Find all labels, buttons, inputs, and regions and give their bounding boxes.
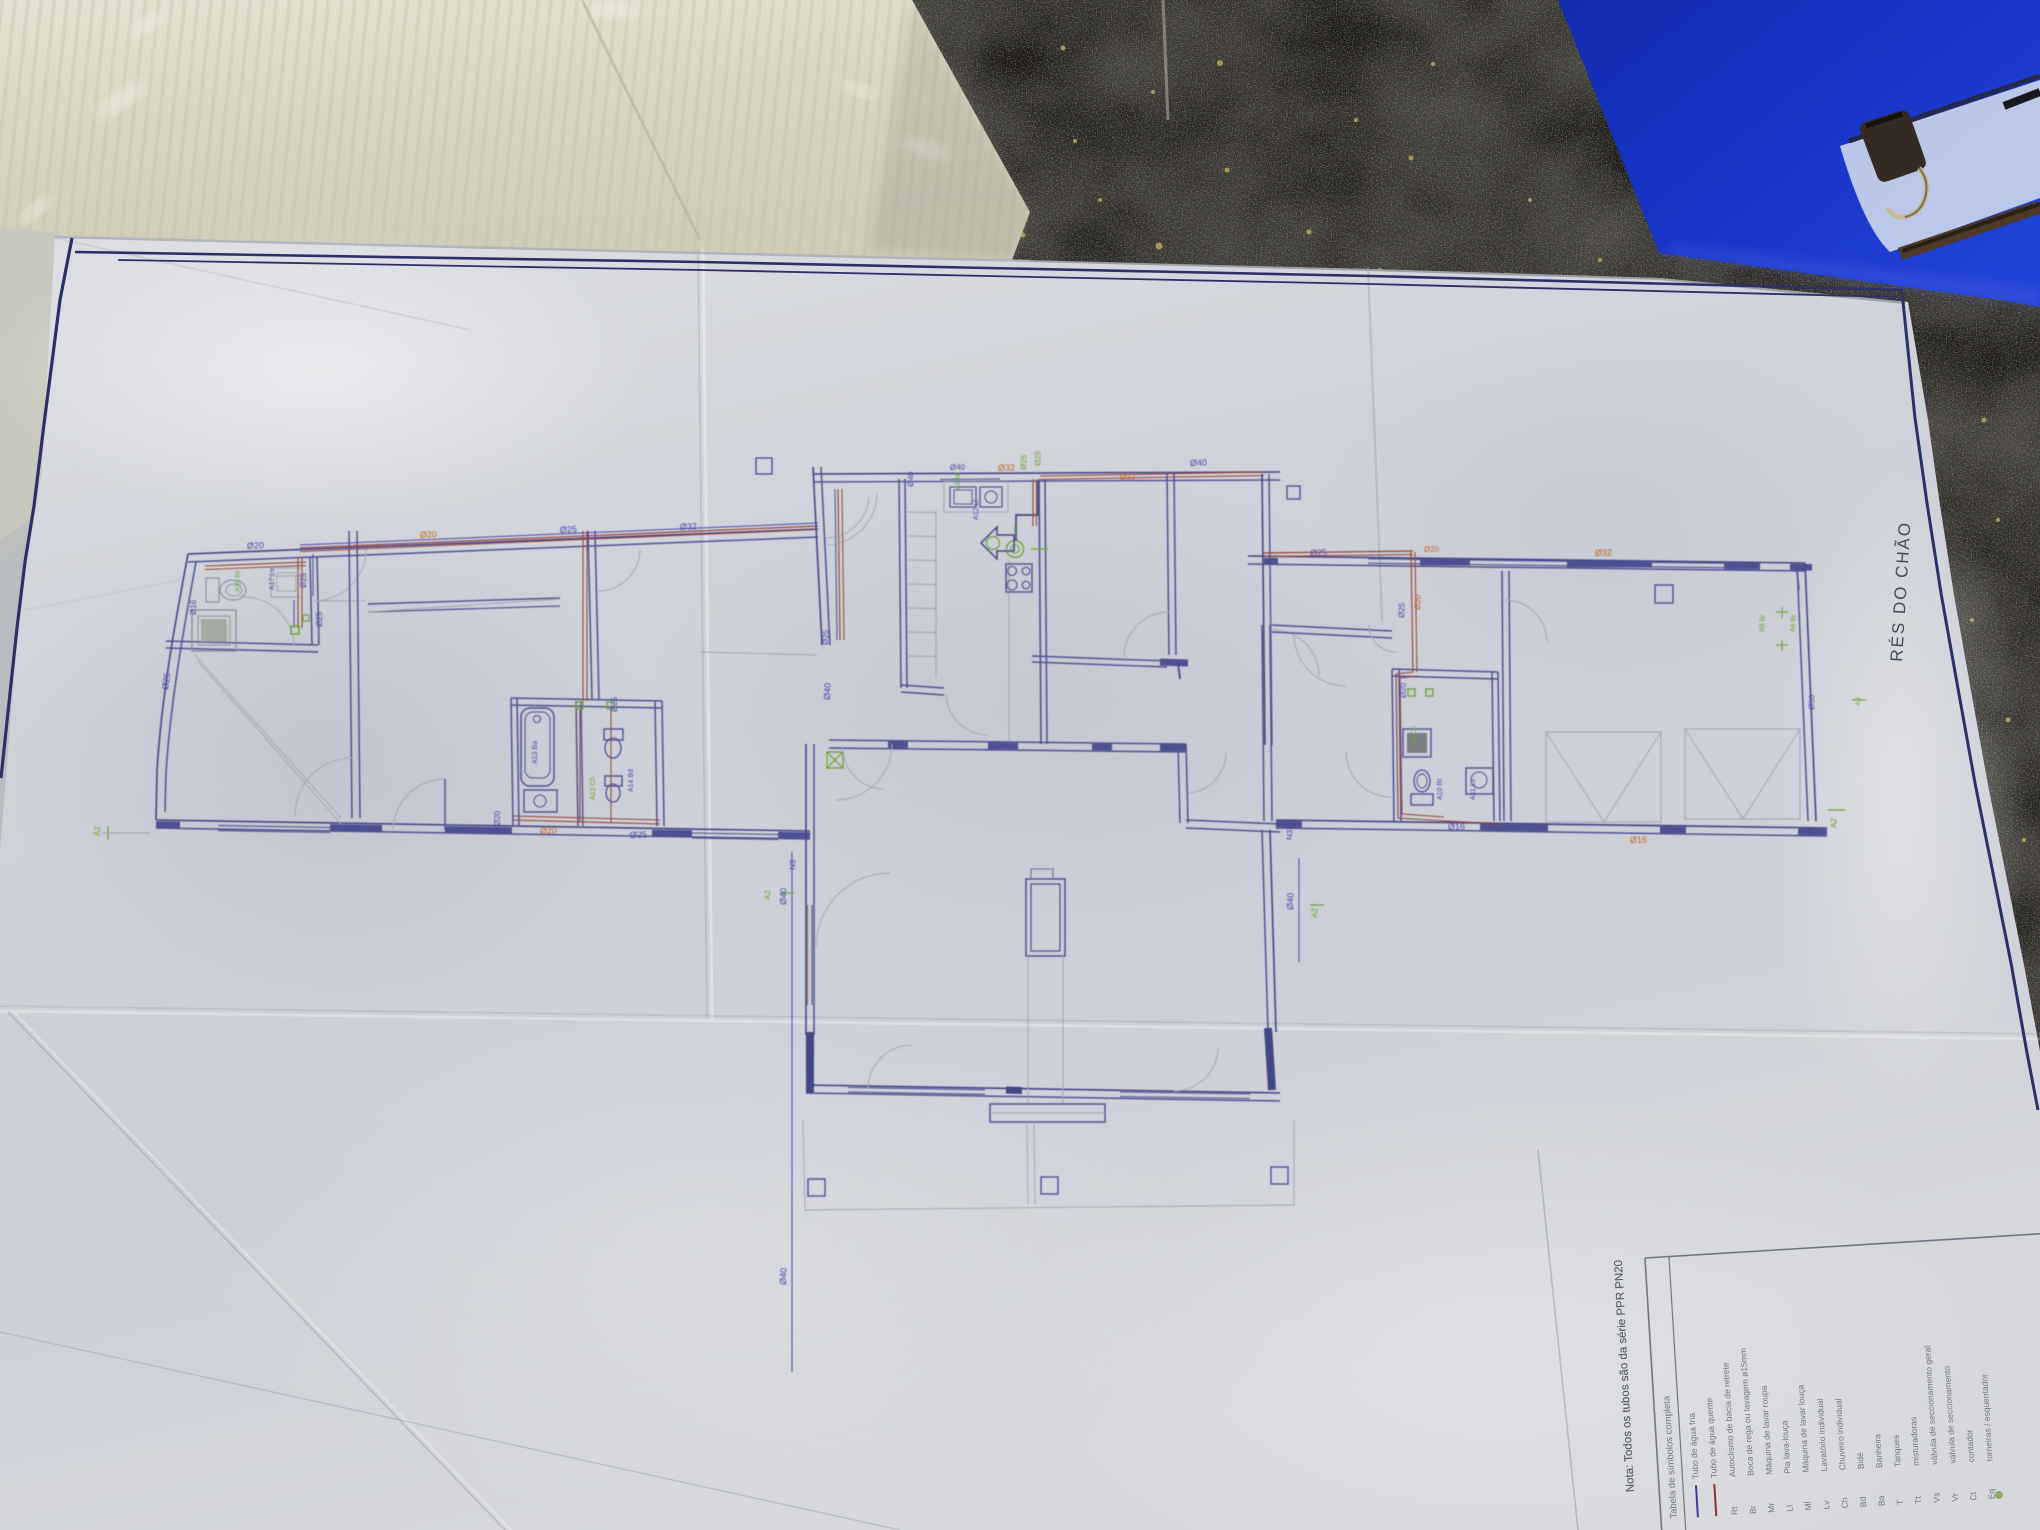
svg-text:Ø25: Ø25 xyxy=(560,524,578,535)
svg-text:Ll: Ll xyxy=(1784,1505,1794,1512)
svg-text:A12 Ll: A12 Ll xyxy=(973,500,980,520)
svg-text:N3: N3 xyxy=(788,859,797,870)
svg-text:A16 Rt: A16 Rt xyxy=(235,571,242,592)
svg-text:A10 Rt: A10 Rt xyxy=(1437,779,1444,800)
svg-text:Ø25: Ø25 xyxy=(610,696,619,712)
svg-text:Ø20: Ø20 xyxy=(247,540,265,551)
svg-text:Ø16: Ø16 xyxy=(1448,821,1465,832)
svg-text:Vr: Vr xyxy=(1950,1493,1960,1502)
svg-text:Ø20: Ø20 xyxy=(540,825,557,836)
svg-text:Ø20: Ø20 xyxy=(493,810,502,826)
svg-text:Ø25: Ø25 xyxy=(1033,450,1043,466)
svg-text:A2: A2 xyxy=(1310,907,1319,918)
svg-text:T: T xyxy=(1895,1499,1905,1505)
svg-text:Vs: Vs xyxy=(1931,1492,1942,1503)
svg-text:Ø16: Ø16 xyxy=(1630,834,1647,845)
svg-text:Ø40: Ø40 xyxy=(778,888,789,905)
svg-text:Ø20: Ø20 xyxy=(1413,594,1423,610)
svg-text:Bd: Bd xyxy=(1858,1496,1869,1507)
svg-text:Ml: Ml xyxy=(1803,1501,1814,1511)
svg-text:A8 Ch: A8 Ch xyxy=(1411,725,1418,745)
svg-text:Ø50: Ø50 xyxy=(1807,694,1817,710)
svg-text:Lv: Lv xyxy=(1821,1499,1832,1509)
svg-text:Ø40: Ø40 xyxy=(1285,893,1296,910)
svg-text:A6 Br: A6 Br xyxy=(1790,614,1798,632)
svg-text:Banheira: Banheira xyxy=(1872,1434,1884,1469)
svg-text:A2: A2 xyxy=(1829,817,1838,828)
svg-text:Ø32: Ø32 xyxy=(998,462,1015,473)
svg-text:Ø25: Ø25 xyxy=(630,829,647,840)
svg-text:contador: contador xyxy=(1964,1429,1976,1463)
svg-text:Ø25: Ø25 xyxy=(315,611,324,627)
svg-text:Mr: Mr xyxy=(1766,1502,1777,1513)
svg-text:Ø25: Ø25 xyxy=(299,572,308,588)
svg-text:Ø32: Ø32 xyxy=(680,521,698,532)
svg-text:Ø25: Ø25 xyxy=(1397,602,1407,618)
svg-text:A14 Bd: A14 Bd xyxy=(628,769,635,792)
svg-text:Ø40: Ø40 xyxy=(1190,457,1207,468)
svg-text:Rt: Rt xyxy=(1729,1506,1740,1516)
svg-text:Ba: Ba xyxy=(1876,1495,1887,1506)
svg-text:A13 Ba: A13 Ba xyxy=(532,741,539,764)
svg-text:A2: A2 xyxy=(93,826,102,836)
svg-text:Ø20: Ø20 xyxy=(1399,682,1408,698)
svg-text:A17 Lv: A17 Lv xyxy=(269,568,276,590)
svg-text:Ø32: Ø32 xyxy=(1595,547,1612,558)
svg-text:A2: A2 xyxy=(763,889,772,900)
svg-text:Ch: Ch xyxy=(1839,1497,1850,1509)
svg-text:Ct: Ct xyxy=(1968,1491,1979,1501)
svg-text:A9 Ml: A9 Ml xyxy=(955,472,962,490)
svg-text:Ø25: Ø25 xyxy=(1310,547,1327,558)
svg-text:Ø40: Ø40 xyxy=(778,1268,789,1285)
svg-text:Ø20: Ø20 xyxy=(1424,544,1440,554)
svg-text:Ø40: Ø40 xyxy=(906,471,916,487)
svg-text:A3: A3 xyxy=(1855,697,1862,706)
svg-text:Ø20: Ø20 xyxy=(420,529,438,540)
svg-text:A11 Lv: A11 Lv xyxy=(1470,778,1477,800)
svg-text:Ø25: Ø25 xyxy=(1019,454,1029,470)
svg-text:Ø40: Ø40 xyxy=(822,683,833,700)
svg-text:Ø32: Ø32 xyxy=(1120,472,1136,482)
svg-text:Br: Br xyxy=(1748,1505,1759,1514)
svg-text:Ø16: Ø16 xyxy=(189,599,198,615)
svg-text:N37: N37 xyxy=(1285,825,1295,841)
svg-text:A5 Br: A5 Br xyxy=(1759,614,1767,632)
svg-text:Tt: Tt xyxy=(1913,1495,1923,1504)
svg-text:Ø40: Ø40 xyxy=(950,462,966,472)
svg-text:A13 Ch: A13 Ch xyxy=(590,777,597,800)
svg-text:Bidé: Bidé xyxy=(1855,1452,1866,1470)
svg-text:Tanques: Tanques xyxy=(1891,1435,1903,1468)
svg-text:Ø25: Ø25 xyxy=(821,629,831,645)
